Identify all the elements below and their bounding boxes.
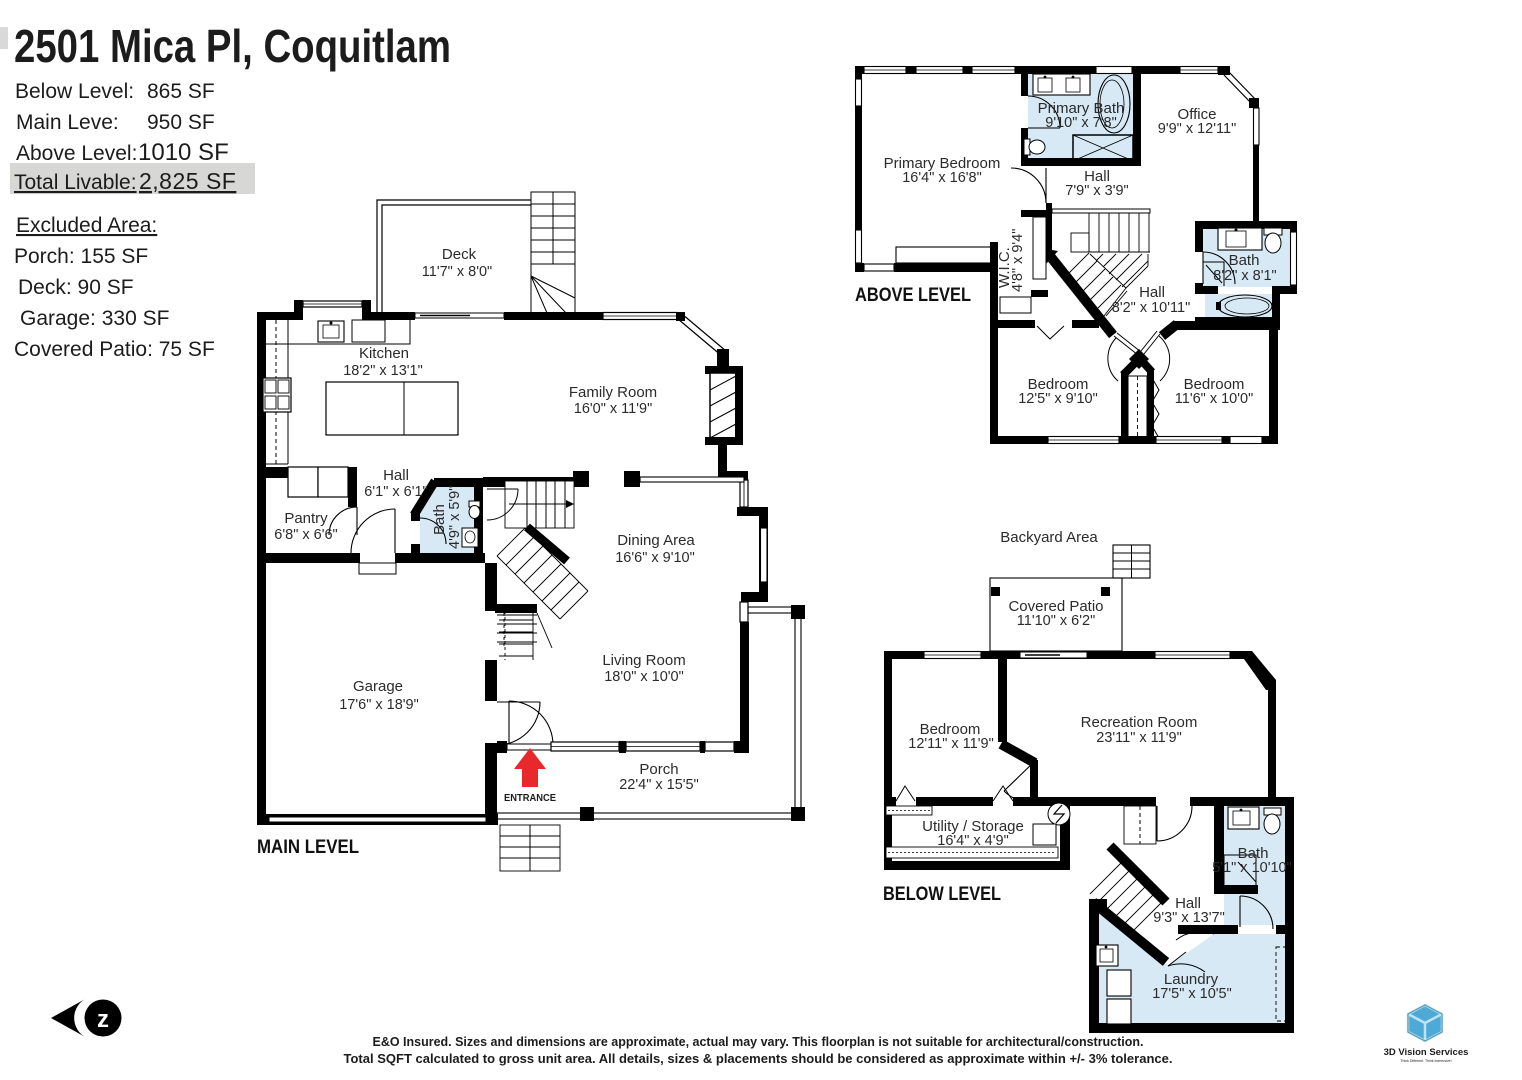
svg-text:Deck: Deck (442, 246, 477, 263)
svg-text:Family Room: Family Room (569, 384, 657, 401)
svg-text:Porch: 155 SF: Porch: 155 SF (14, 245, 148, 268)
svg-text:17'5" x 10'5": 17'5" x 10'5" (1152, 986, 1232, 1002)
svg-text:Living Room: Living Room (602, 652, 685, 669)
svg-text:Garage: 330 SF: Garage: 330 SF (20, 307, 169, 330)
svg-text:12'11" x 11'9": 12'11" x 11'9" (908, 736, 993, 752)
svg-text:ENTRANCE: ENTRANCE (504, 793, 556, 804)
svg-text:2,825 SF: 2,825 SF (139, 168, 236, 194)
svg-text:Kitchen: Kitchen (359, 345, 409, 362)
svg-text:E&O Insured. Sizes and dimensi: E&O Insured. Sizes and dimensions are ap… (373, 1034, 1144, 1049)
svg-text:9'9" x 12'11": 9'9" x 12'11" (1158, 121, 1236, 137)
svg-text:7'9" x 3'9": 7'9" x 3'9" (1065, 183, 1128, 199)
svg-text:12'5" x 9'10": 12'5" x 9'10" (1018, 391, 1098, 407)
svg-text:2501 Mica Pl, Coquitlam: 2501 Mica Pl, Coquitlam (14, 20, 451, 72)
svg-text:22'4" x 15'5": 22'4" x 15'5" (619, 777, 699, 793)
svg-text:Covered Patio: 75 SF: Covered Patio: 75 SF (14, 338, 215, 361)
svg-text:Total Livable:: Total Livable: (14, 171, 137, 194)
svg-text:16'0" x 11'9": 16'0" x 11'9" (574, 401, 652, 417)
svg-text:Hall: Hall (383, 467, 409, 484)
svg-text:865 SF: 865 SF (147, 80, 215, 103)
svg-text:Bath: Bath (431, 504, 448, 535)
svg-text:Bath: Bath (1229, 252, 1260, 269)
svg-text:16'4" x 16'8": 16'4" x 16'8" (902, 170, 982, 186)
svg-text:6'8" x 6'6": 6'8" x 6'6" (274, 527, 337, 543)
svg-text:11'7" x 8'0": 11'7" x 8'0" (422, 264, 492, 280)
svg-text:Think Different. Think Immersi: Think Different. Think Immersive! (1400, 1059, 1451, 1063)
svg-text:Total SQFT calculated to gross: Total SQFT calculated to gross unit area… (344, 1051, 1173, 1066)
svg-text:6'1" x 6'1": 6'1" x 6'1" (364, 484, 427, 500)
svg-text:23'11" x 11'9": 23'11" x 11'9" (1096, 730, 1181, 746)
svg-text:Excluded Area:: Excluded Area: (16, 214, 157, 237)
svg-text:1010 SF: 1010 SF (138, 139, 229, 166)
svg-text:16'4" x 4'9": 16'4" x 4'9" (937, 833, 1008, 849)
svg-text:4'9" x 5'9": 4'9" x 5'9" (447, 486, 463, 549)
svg-text:BELOW LEVEL: BELOW LEVEL (883, 884, 1001, 905)
svg-text:Dining Area: Dining Area (617, 532, 695, 549)
svg-text:MAIN LEVEL: MAIN LEVEL (257, 837, 359, 858)
svg-text:Porch: Porch (639, 761, 678, 778)
svg-text:16'6" x 9'10": 16'6" x 9'10" (615, 550, 695, 566)
svg-text:9'10" x 7'8": 9'10" x 7'8" (1045, 115, 1116, 131)
svg-text:Hall: Hall (1139, 284, 1165, 301)
svg-text:8'2" x 8'1": 8'2" x 8'1" (1213, 268, 1276, 284)
svg-text:11'6" x 10'0": 11'6" x 10'0" (1175, 391, 1253, 407)
svg-text:5'1" x 10'10": 5'1" x 10'10" (1212, 860, 1292, 876)
svg-text:Deck: 90 SF: Deck: 90 SF (18, 276, 134, 299)
svg-text:950 SF: 950 SF (147, 111, 215, 134)
svg-text:Garage: Garage (353, 678, 403, 695)
svg-text:Main Leve:: Main Leve: (16, 111, 119, 134)
svg-text:Backyard Area: Backyard Area (1000, 529, 1098, 546)
svg-text:z: z (97, 1006, 109, 1033)
svg-text:Above Level:: Above Level: (16, 142, 137, 165)
svg-text:18'2" x 13'1": 18'2" x 13'1" (343, 363, 423, 379)
svg-text:Pantry: Pantry (284, 510, 328, 527)
svg-text:Recreation Room: Recreation Room (1081, 714, 1198, 731)
svg-text:4'8" x 9'4": 4'8" x 9'4" (1010, 229, 1026, 292)
svg-text:9'3" x 13'7": 9'3" x 13'7" (1153, 910, 1224, 926)
svg-text:8'2" x 10'11": 8'2" x 10'11" (1112, 300, 1190, 316)
svg-text:3D Vision Services: 3D Vision Services (1384, 1047, 1469, 1058)
svg-text:11'10" x 6'2": 11'10" x 6'2" (1017, 613, 1095, 629)
svg-text:Below Level:: Below Level: (15, 80, 134, 103)
svg-text:ABOVE LEVEL: ABOVE LEVEL (855, 285, 971, 306)
svg-text:17'6" x 18'9": 17'6" x 18'9" (339, 697, 419, 713)
svg-text:18'0" x 10'0": 18'0" x 10'0" (604, 669, 684, 685)
